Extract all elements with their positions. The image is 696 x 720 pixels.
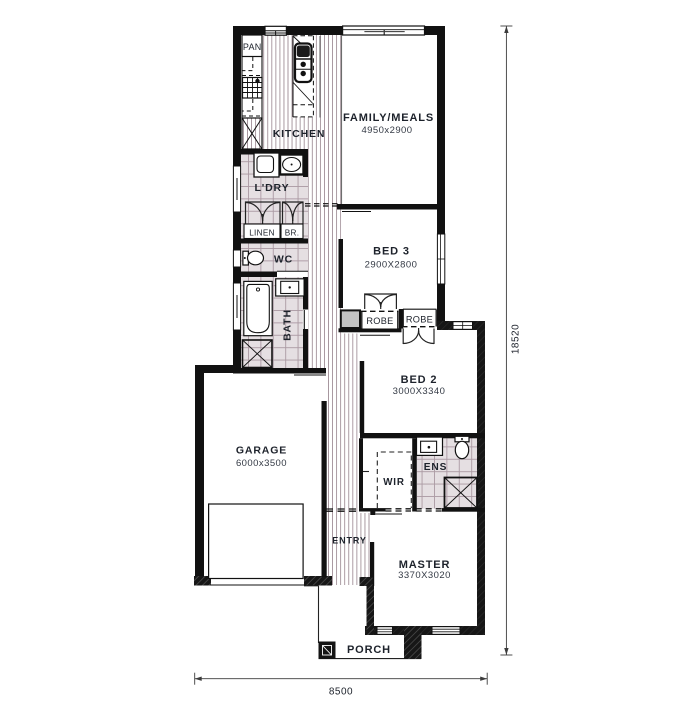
svg-text:PAN: PAN [243, 42, 262, 52]
svg-text:L'DRY: L'DRY [255, 182, 290, 194]
svg-text:WIR: WIR [383, 477, 405, 488]
svg-text:2900X2800: 2900X2800 [365, 259, 418, 270]
svg-text:ROBE: ROBE [366, 316, 393, 326]
svg-text:FAMILY/MEALS: FAMILY/MEALS [343, 112, 434, 124]
svg-text:ENTRY: ENTRY [332, 536, 366, 546]
svg-text:BR.: BR. [285, 228, 300, 237]
svg-text:MASTER: MASTER [399, 559, 451, 571]
svg-text:LINEN: LINEN [249, 228, 275, 237]
svg-text:BED 2: BED 2 [401, 374, 438, 386]
svg-text:PORCH: PORCH [347, 644, 391, 656]
svg-text:ENS: ENS [424, 462, 448, 473]
svg-text:GARAGE: GARAGE [236, 445, 287, 457]
svg-text:KITCHEN: KITCHEN [273, 128, 326, 140]
svg-text:8500: 8500 [329, 687, 353, 698]
svg-text:BED 3: BED 3 [373, 245, 410, 257]
svg-text:6000x3500: 6000x3500 [236, 458, 287, 469]
svg-text:WC: WC [274, 253, 293, 265]
svg-text:4950x2900: 4950x2900 [361, 125, 412, 136]
svg-text:ROBE: ROBE [406, 314, 433, 324]
svg-text:BATH: BATH [282, 309, 294, 341]
svg-text:18520: 18520 [511, 324, 522, 354]
svg-text:3000X3340: 3000X3340 [393, 386, 446, 397]
svg-text:3370X3020: 3370X3020 [398, 570, 451, 581]
